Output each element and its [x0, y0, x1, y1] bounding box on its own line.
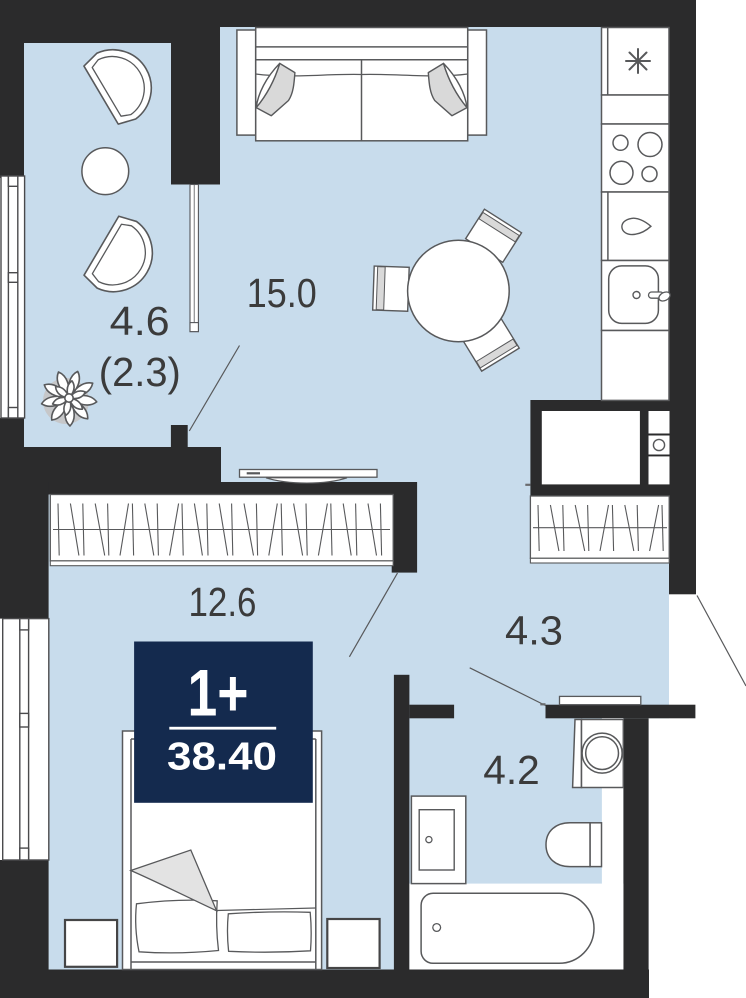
svg-text:(2.3): (2.3) — [99, 349, 181, 395]
svg-text:4.3: 4.3 — [505, 608, 563, 654]
svg-text:1+: 1+ — [188, 656, 249, 730]
svg-text:4.6: 4.6 — [110, 298, 170, 344]
svg-text:4.2: 4.2 — [483, 747, 540, 793]
svg-text:15.0: 15.0 — [247, 270, 317, 316]
svg-text:12.6: 12.6 — [189, 579, 257, 625]
svg-text:38.40: 38.40 — [167, 735, 277, 778]
